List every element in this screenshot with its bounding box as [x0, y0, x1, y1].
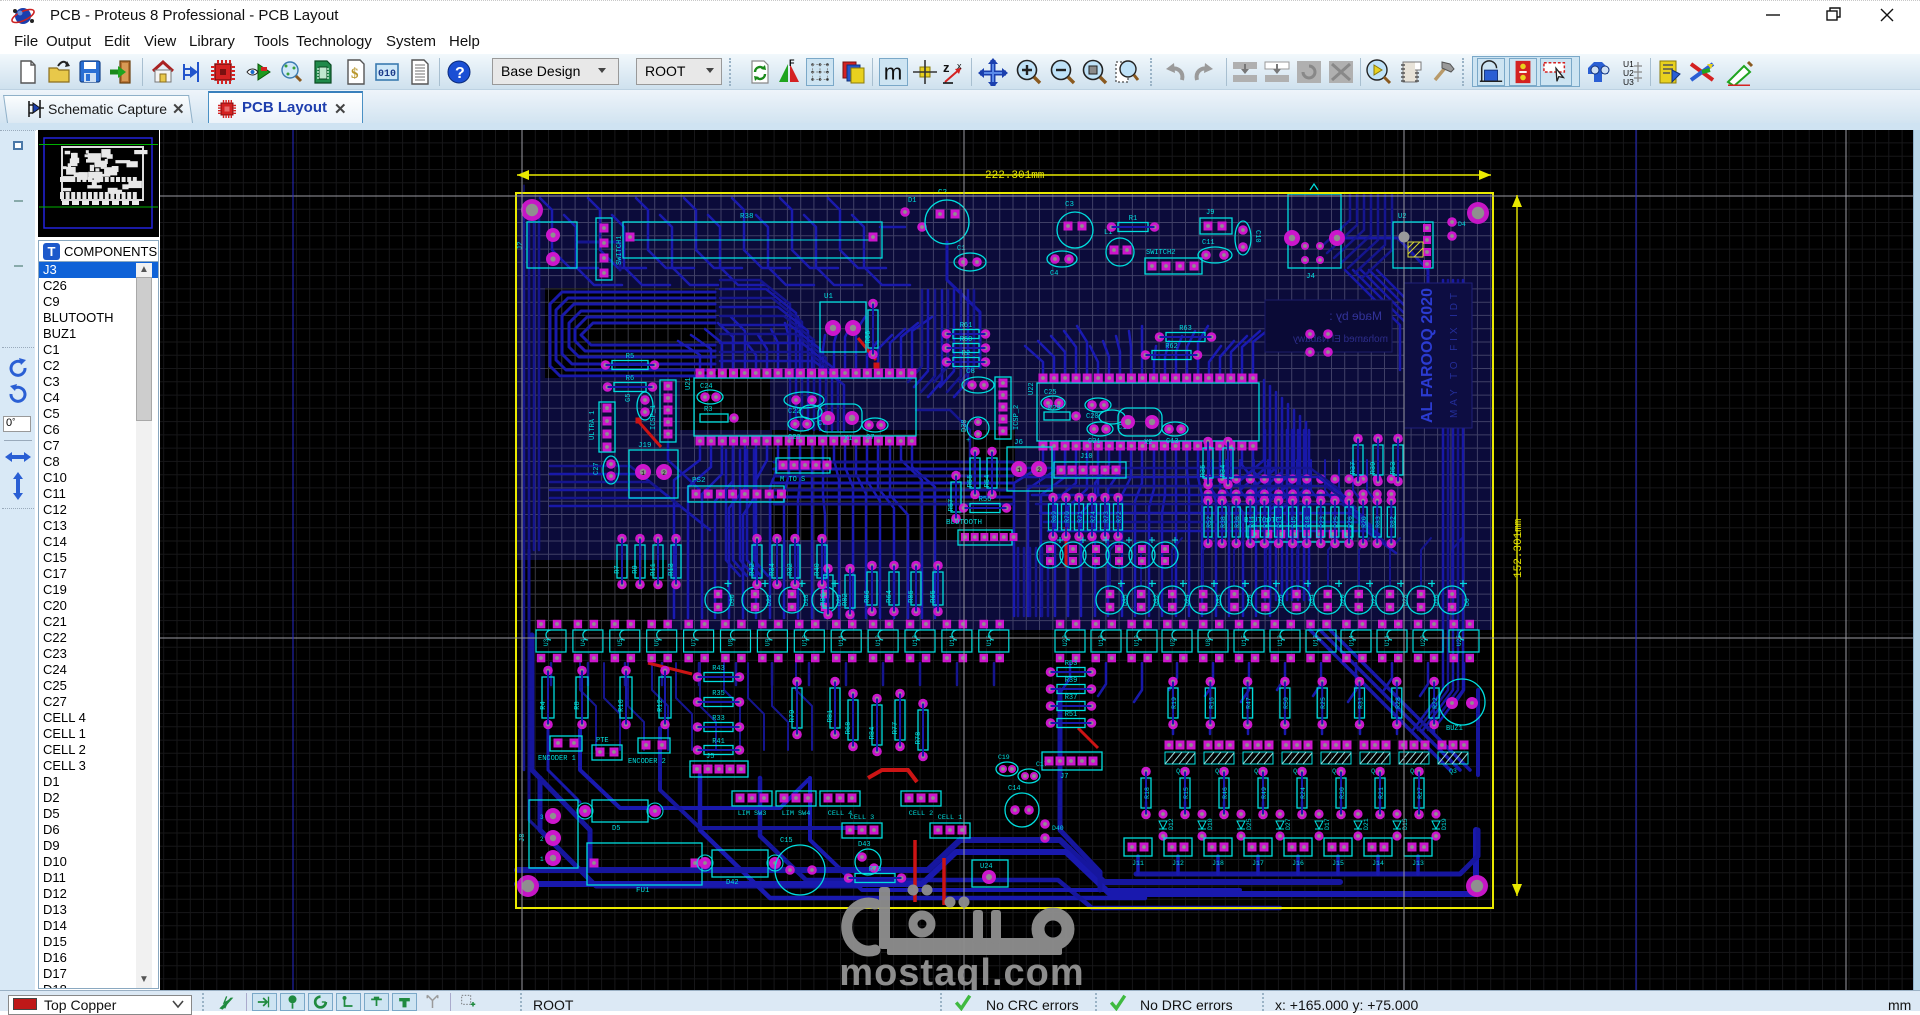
svg-text:R73: R73 [869, 866, 882, 874]
svg-text:mostaql.com: mostaql.com [839, 952, 1084, 990]
svg-text:R35: R35 [1200, 465, 1208, 478]
svg-text:D12: D12 [1168, 818, 1175, 830]
svg-text:D19: D19 [1441, 818, 1448, 830]
svg-text:D25: D25 [1246, 818, 1253, 830]
svg-text:2: 2 [540, 836, 544, 843]
svg-text:D21: D21 [1363, 818, 1370, 830]
svg-text:J7: J7 [1060, 773, 1068, 781]
svg-text:R66: R66 [865, 331, 873, 344]
svg-text:U25: U25 [1456, 635, 1463, 646]
svg-text:D15: D15 [1402, 818, 1409, 830]
svg-text:ICSP_2: ICSP_2 [1013, 405, 1021, 430]
svg-text:R7: R7 [614, 565, 622, 573]
svg-text:R5: R5 [626, 353, 634, 361]
svg-text:J15: J15 [1332, 860, 1344, 867]
svg-text:D18: D18 [803, 594, 810, 606]
svg-text:C4: C4 [1050, 270, 1058, 278]
svg-text:R83: R83 [1375, 516, 1382, 528]
svg-text:R38: R38 [1220, 516, 1227, 528]
svg-text:X1: X1 [844, 435, 852, 443]
svg-text:R16: R16 [1208, 697, 1215, 709]
svg-text:U22: U22 [1062, 635, 1069, 646]
svg-text:CELL 1: CELL 1 [938, 814, 962, 822]
svg-text:U10: U10 [801, 635, 808, 646]
svg-text:3: 3 [540, 814, 544, 821]
svg-text:010: 010 [378, 69, 396, 80]
svg-text:C10: C10 [1253, 230, 1261, 243]
svg-text:R78: R78 [915, 732, 923, 745]
svg-text:X2: X2 [1144, 439, 1152, 447]
svg-text:R80: R80 [820, 593, 828, 606]
svg-text:D5: D5 [612, 825, 620, 833]
svg-text:U13: U13 [1277, 635, 1284, 646]
svg-text:C13: C13 [1166, 438, 1179, 446]
svg-text:D38: D38 [961, 419, 969, 432]
svg-text:R13: R13 [668, 563, 676, 576]
svg-text:U16: U16 [986, 635, 993, 646]
svg-text:R81: R81 [827, 710, 835, 723]
svg-text:U4: U4 [580, 638, 587, 646]
svg-text:ULTRA 1: ULTRA 1 [589, 411, 597, 440]
svg-text:U2: U2 [1169, 638, 1176, 646]
svg-text:R18: R18 [1144, 787, 1151, 799]
svg-text:R36: R36 [1234, 516, 1241, 528]
svg-text:R37: R37 [1065, 694, 1078, 702]
svg-text:z: z [943, 60, 950, 75]
svg-text:U2: U2 [1398, 213, 1406, 221]
svg-text:C7: C7 [866, 434, 874, 442]
svg-text:CELL 3: CELL 3 [850, 814, 874, 822]
svg-text:R2: R2 [962, 350, 970, 358]
svg-text:C22: C22 [788, 408, 801, 416]
svg-text:U14: U14 [1348, 635, 1355, 646]
svg-text:U3: U3 [543, 638, 550, 646]
svg-text:G5: G5 [625, 394, 633, 402]
svg-text:R42: R42 [749, 563, 757, 576]
svg-text:R24: R24 [1300, 787, 1307, 799]
svg-text:U11: U11 [1384, 635, 1391, 646]
svg-text:R77: R77 [892, 722, 900, 735]
svg-text:R62: R62 [1165, 343, 1178, 351]
svg-text:R45: R45 [1291, 516, 1298, 528]
svg-text:U1: U1 [824, 293, 834, 301]
svg-text:R22: R22 [1432, 697, 1439, 709]
svg-text:R69: R69 [1051, 511, 1058, 523]
svg-text:D4: D4 [1458, 221, 1466, 228]
svg-text:R17: R17 [1262, 516, 1269, 528]
svg-text:R25: R25 [1320, 697, 1327, 709]
svg-text:R84: R84 [869, 727, 877, 740]
svg-text:R54: R54 [984, 475, 992, 488]
svg-text:C11: C11 [1202, 239, 1215, 247]
svg-text:R63: R63 [1179, 325, 1192, 333]
svg-text:AL FAROOQ 2020: AL FAROOQ 2020 [1419, 288, 1436, 423]
svg-text:R11: R11 [650, 563, 658, 576]
svg-text:U8: U8 [728, 638, 735, 646]
svg-text:R34: R34 [769, 563, 777, 576]
svg-text:J16: J16 [1292, 860, 1304, 867]
svg-text:?: ? [455, 65, 465, 82]
svg-text:U14: U14 [949, 635, 956, 646]
svg-text:CELL 4: CELL 4 [828, 810, 852, 818]
svg-text:D40: D40 [1052, 825, 1064, 832]
svg-text:J14: J14 [1372, 860, 1384, 867]
svg-text:R19: R19 [1171, 697, 1178, 709]
svg-text:R61: R61 [960, 322, 973, 330]
svg-text:152.301mm: 152.301mm [1513, 518, 1525, 578]
svg-text:R28: R28 [1395, 697, 1402, 709]
svg-text:R72: R72 [1116, 511, 1123, 523]
svg-text:R21: R21 [1378, 787, 1385, 799]
svg-text:Made by :: Made by : [1329, 309, 1382, 323]
svg-text:R44: R44 [1248, 516, 1255, 528]
svg-text:U5: U5 [617, 638, 624, 646]
svg-text:R65: R65 [930, 590, 938, 603]
svg-text:D1: D1 [908, 197, 916, 205]
svg-text:FU1: FU1 [636, 887, 650, 895]
svg-text:m: m [884, 59, 903, 84]
svg-text:R8: R8 [574, 701, 582, 709]
svg-text:R15: R15 [1183, 787, 1190, 799]
svg-text:D6: D6 [1464, 598, 1471, 606]
svg-text:R10: R10 [618, 699, 626, 712]
svg-text:R35: R35 [712, 690, 725, 698]
svg-text:R86: R86 [864, 590, 872, 603]
svg-text:C19: C19 [998, 754, 1010, 761]
svg-text:D43: D43 [858, 841, 871, 849]
svg-text:C8: C8 [966, 368, 975, 376]
svg-text:R52: R52 [1206, 516, 1213, 528]
svg-text:R70: R70 [1064, 511, 1071, 523]
svg-text:R50: R50 [1283, 697, 1290, 709]
svg-text:R6: R6 [626, 375, 634, 383]
svg-text:U12: U12 [875, 635, 882, 646]
svg-text:R57: R57 [948, 499, 956, 512]
svg-text:J12: J12 [1172, 860, 1184, 867]
svg-text:R82: R82 [842, 593, 850, 606]
svg-text:D42: D42 [726, 879, 739, 887]
svg-text:J8: J8 [519, 834, 527, 842]
svg-text:D10: D10 [1207, 818, 1214, 830]
svg-text:R23: R23 [1319, 516, 1326, 528]
svg-text:PS2: PS2 [692, 477, 706, 485]
svg-text:R4: R4 [540, 701, 548, 709]
svg-text:LIM SW3: LIM SW3 [738, 810, 767, 818]
svg-text:J10: J10 [1080, 453, 1093, 461]
svg-text:1: 1 [540, 856, 544, 863]
svg-text:U7: U7 [691, 638, 698, 646]
svg-text:$: $ [351, 66, 359, 82]
svg-text:R82: R82 [1389, 516, 1396, 528]
svg-text:1: 1 [641, 470, 645, 477]
svg-text:R12: R12 [657, 699, 665, 712]
svg-text:U6: U6 [654, 638, 661, 646]
svg-text:U3: U3 [1623, 77, 1634, 86]
svg-text:ENCODER 1: ENCODER 1 [538, 755, 576, 763]
svg-text:R51: R51 [1065, 711, 1078, 719]
svg-text:R85: R85 [908, 590, 916, 603]
svg-text:R41: R41 [712, 738, 725, 746]
svg-text:U22: U22 [1028, 382, 1036, 395]
svg-text:U11: U11 [838, 635, 845, 646]
svg-text:R53: R53 [1065, 660, 1078, 668]
svg-text:SWITCH2: SWITCH2 [1146, 249, 1175, 257]
svg-text:R64: R64 [886, 590, 894, 603]
svg-text:2: 2 [1037, 467, 1041, 474]
svg-text:R43: R43 [712, 665, 725, 673]
svg-text:R68: R68 [845, 722, 853, 735]
svg-text:R71: R71 [1077, 511, 1084, 523]
svg-text:R25: R25 [1333, 516, 1340, 528]
svg-text:U19: U19 [1134, 635, 1141, 646]
svg-text:U29: U29 [1420, 635, 1427, 646]
svg-text:R60: R60 [960, 336, 973, 344]
svg-text:R39: R39 [1065, 677, 1078, 685]
svg-text:U18: U18 [1098, 635, 1105, 646]
svg-text:R73: R73 [1103, 511, 1110, 523]
svg-text:x: x [957, 61, 962, 71]
svg-text:C15: C15 [780, 837, 793, 845]
svg-text:F: F [789, 58, 795, 68]
svg-text:C27: C27 [593, 462, 601, 475]
svg-text:R39: R39 [1370, 462, 1378, 475]
svg-text:J2: J2 [517, 242, 525, 250]
svg-text:M TO S: M TO S [780, 476, 805, 484]
svg-text:C20: C20 [1086, 413, 1099, 421]
svg-text:R32: R32 [787, 563, 795, 576]
svg-text:J9: J9 [1206, 209, 1214, 217]
svg-text:J17: J17 [1252, 860, 1264, 867]
svg-text:J6: J6 [1014, 439, 1024, 447]
svg-text:R37: R37 [1350, 462, 1358, 475]
svg-text:J4: J4 [1306, 273, 1316, 281]
svg-text:R47: R47 [1246, 697, 1253, 709]
svg-text:R74: R74 [1090, 511, 1097, 523]
svg-text:R20: R20 [1361, 516, 1368, 528]
svg-text:R29: R29 [1048, 405, 1061, 413]
svg-text:R56: R56 [979, 496, 992, 504]
svg-text:D22: D22 [766, 594, 773, 606]
svg-text:U9: U9 [764, 638, 771, 646]
svg-text:R33: R33 [712, 715, 725, 723]
svg-text:R79: R79 [789, 710, 797, 723]
svg-text:CELL 2: CELL 2 [909, 810, 933, 818]
svg-text:R34: R34 [1220, 465, 1228, 478]
svg-text:R48: R48 [1305, 516, 1312, 528]
svg-text:J5: J5 [706, 753, 714, 761]
svg-text:R40: R40 [814, 563, 822, 576]
svg-text:2: 2 [662, 470, 666, 477]
svg-text:U13: U13 [912, 635, 919, 646]
svg-text:R30: R30 [1339, 787, 1346, 799]
svg-text:D27: D27 [1285, 818, 1292, 830]
svg-text:R9: R9 [632, 565, 640, 573]
svg-text:C23: C23 [788, 434, 801, 442]
svg-text:R38: R38 [740, 213, 754, 221]
svg-text:ENCODER 2: ENCODER 2 [628, 758, 666, 766]
svg-text:ICSP_1: ICSP_1 [650, 405, 658, 430]
svg-text:U24: U24 [980, 863, 993, 871]
svg-text:R26: R26 [1347, 516, 1354, 528]
svg-text:R53: R53 [1390, 462, 1398, 475]
svg-text:U21: U21 [685, 377, 693, 390]
svg-text:U12: U12 [1313, 635, 1320, 646]
svg-text:J19: J19 [638, 442, 652, 450]
svg-text:J11: J11 [1132, 860, 1144, 867]
svg-text:+: + [966, 437, 970, 445]
svg-text:U8: U8 [1205, 638, 1212, 646]
svg-text:R55: R55 [967, 475, 975, 488]
svg-text:PTE: PTE [596, 737, 609, 745]
svg-text:J18: J18 [1212, 860, 1224, 867]
svg-text:D17: D17 [1324, 818, 1331, 830]
svg-text:BUZ1: BUZ1 [1446, 725, 1463, 733]
svg-text:R3: R3 [704, 406, 712, 414]
svg-text:Q3: Q3 [1449, 768, 1457, 775]
svg-text:R1: R1 [1129, 215, 1137, 223]
svg-text:222.301mm: 222.301mm [985, 170, 1045, 182]
svg-text:R27: R27 [1417, 787, 1424, 799]
svg-text:U15: U15 [1241, 635, 1248, 646]
svg-text:C21: C21 [1088, 438, 1101, 446]
svg-text:D30: D30 [729, 594, 736, 606]
svg-text:R46: R46 [1222, 787, 1229, 799]
svg-text:R49: R49 [1261, 787, 1268, 799]
svg-text:1: 1 [1017, 467, 1021, 474]
svg-text:C3: C3 [1065, 201, 1075, 209]
svg-text:R14: R14 [1277, 516, 1284, 528]
svg-text:C14: C14 [1008, 785, 1021, 793]
svg-text:LIM SW4: LIM SW4 [782, 810, 811, 818]
svg-text:J13: J13 [1412, 860, 1424, 867]
svg-text:R31: R31 [1358, 697, 1365, 709]
